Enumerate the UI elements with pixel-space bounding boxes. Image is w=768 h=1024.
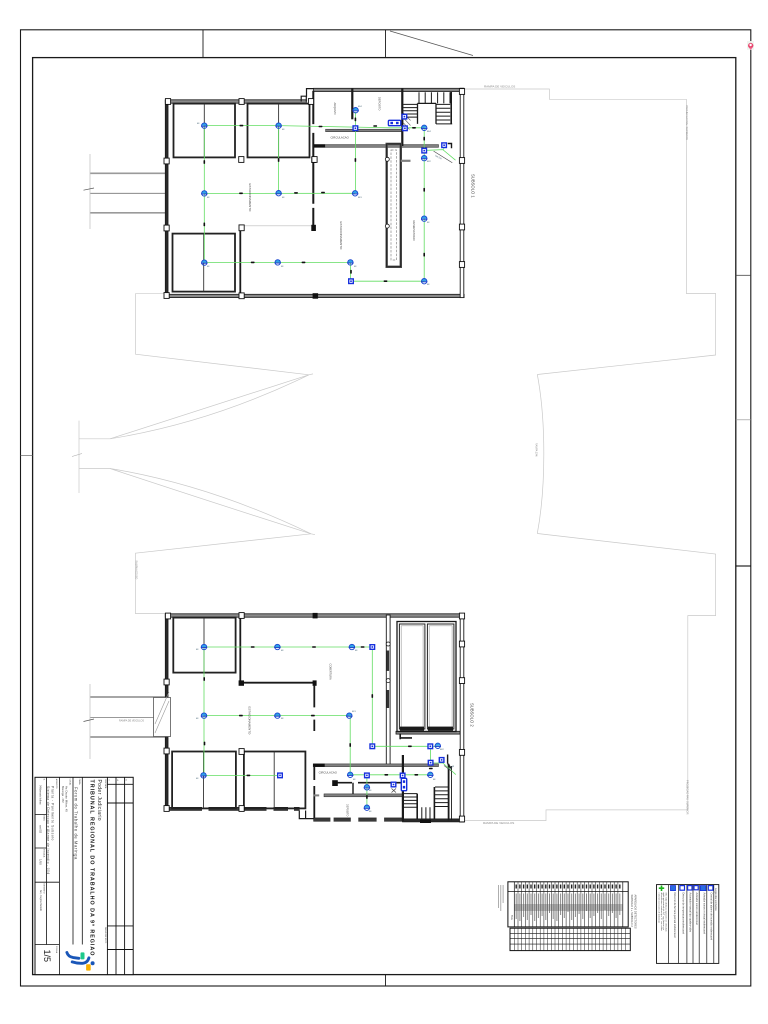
svg-text:CIRCULACAO: CIRCULACAO — [331, 135, 350, 139]
svg-text:Avisador sonoro enderecavel: Avisador sonoro enderecavel — [695, 893, 698, 926]
svg-text:ESCALA: ESCALA — [42, 849, 45, 858]
svg-text:COBERTURA: COBERTURA — [329, 664, 333, 681]
svg-text:Detector de temperatura endere: Detector de temperatura enderecavel — [682, 893, 685, 935]
svg-text:Central de alarme de incendio: Central de alarme de incendio enderecave… — [710, 893, 713, 941]
svg-text:PROJECAO PAV. SUPERIOR: PROJECAO PAV. SUPERIOR — [686, 780, 690, 815]
svg-text:RAMPA DE VEICULOS: RAMPA DE VEICULOS — [119, 719, 144, 722]
svg-text:Legenda simbolos: Legenda simbolos — [714, 888, 718, 911]
svg-text:OBRA: OBRA — [78, 779, 81, 785]
svg-text:REV DATA: REV DATA — [104, 780, 107, 790]
svg-text:set/02: set/02 — [38, 825, 42, 834]
svg-text:Maringa - PR: Maringa - PR — [61, 786, 65, 802]
svg-text:Arq. Regina Bertotti: Arq. Regina Bertotti — [39, 890, 42, 911]
svg-text:FOLHA: FOLHA — [55, 946, 58, 953]
svg-text:TRIBUNAL REGIONAL DO TRABALHO: TRIBUNAL REGIONAL DO TRABALHO DA 9ª REGI… — [89, 780, 95, 957]
svg-text:SUBSOLO 1: SUBSOLO 1 — [471, 174, 476, 198]
svg-text:APARELHOS DETECTORES: APARELHOS DETECTORES — [634, 895, 638, 929]
svg-text:CIRCULACAO: CIRCULACAO — [319, 771, 338, 775]
svg-text:DEPOSITO: DEPOSITO — [345, 804, 348, 816]
svg-text:PROJECAO PAV. SUPERIOR: PROJECAO PAV. SUPERIOR — [685, 106, 689, 141]
svg-text:Avisador sonoro e visual ender: Avisador sonoro e visual enderecavel — [703, 893, 706, 935]
svg-text:TAG: TAG — [510, 915, 513, 920]
svg-text:RAMPA 10%: RAMPA 10% — [535, 443, 538, 458]
svg-text:DATA NOME VISTO: DATA NOME VISTO — [104, 927, 107, 944]
svg-text:RAMPA DE VEICULOS: RAMPA DE VEICULOS — [483, 821, 514, 825]
svg-text:ESTACIONAMENTO: ESTACIONAMENTO — [339, 222, 343, 251]
svg-text:1/5: 1/5 — [42, 950, 52, 963]
svg-text:RAMPA DE VEICULOS: RAMPA DE VEICULOS — [484, 85, 515, 89]
svg-text:DEPOSITO: DEPOSITO — [378, 97, 382, 110]
svg-text:Detector de fumaca pontual end: Detector de fumaca pontual enderecavel — [673, 893, 676, 938]
svg-text:e demais acessorios de instala: e demais acessorios de instalacao — [657, 893, 660, 924]
svg-text:RAMPA ACESSO: RAMPA ACESSO — [134, 561, 137, 580]
svg-text:ESTACIONAMENTO: ESTACIONAMENTO — [248, 184, 252, 213]
svg-text:1/50: 1/50 — [38, 859, 42, 865]
svg-text:0: 0 — [108, 780, 110, 781]
svg-text:ARQUIVO: ARQUIVO — [333, 103, 337, 115]
svg-text:DATA: DATA — [42, 816, 45, 822]
svg-text:Acionador manual tipo quebra-v: Acionador manual tipo quebra-vidro — [689, 893, 692, 933]
svg-text:RESERVATORIO: RESERVATORIO — [412, 221, 416, 241]
svg-text:04/demais folhas: 04/demais folhas — [39, 785, 43, 805]
svg-text:SUBSOLO 1 + SUBSOLO 2: SUBSOLO 1 + SUBSOLO 2 — [630, 895, 634, 928]
svg-text:Sistema de Deteccao e Alarme d: Sistema de Deteccao e Alarme de Incendio… — [46, 786, 50, 874]
svg-text:ESTACIONAMENTO: ESTACIONAMENTO — [248, 707, 252, 736]
svg-text:SUBSOLO 2: SUBSOLO 2 — [470, 703, 475, 727]
svg-text:Planta - Pavimento Subsolo: Planta - Pavimento Subsolo — [51, 786, 55, 841]
svg-text:Poder Judiciario: Poder Judiciario — [96, 780, 102, 821]
svg-text:Forum do Trabalho de Maringa: Forum do Trabalho de Maringa — [74, 787, 79, 860]
